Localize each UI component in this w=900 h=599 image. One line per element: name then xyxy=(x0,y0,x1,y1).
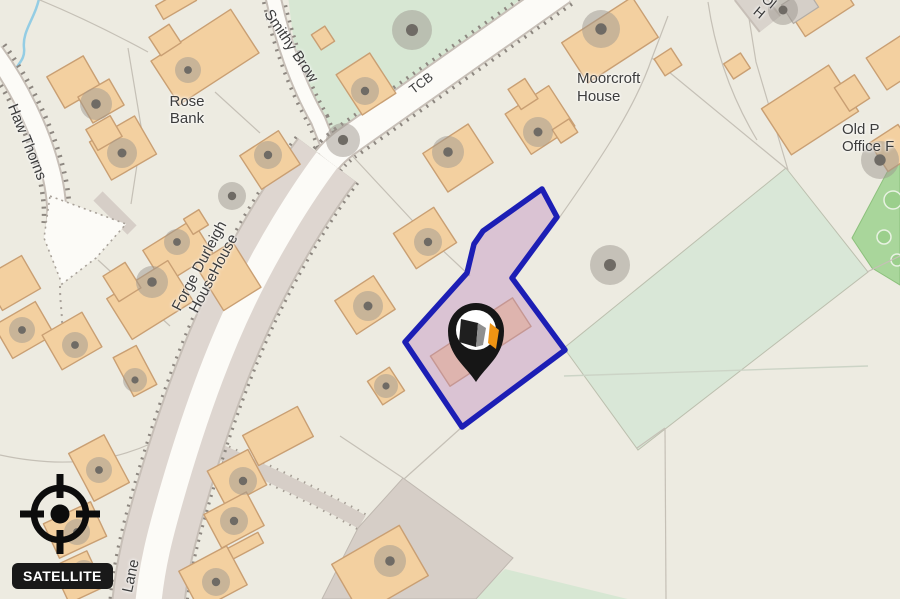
satellite-button-label: SATELLITE xyxy=(23,568,102,584)
map-label-moorcroft-house: Moorcroft House xyxy=(577,70,640,106)
map-label-old-post-office: Old P Office F xyxy=(842,121,894,155)
map-canvas[interactable] xyxy=(0,0,900,599)
map-label-rose-bank: Rose Bank xyxy=(169,93,204,127)
map-viewport[interactable]: Rose Bank Moorcroft House Old P Office F… xyxy=(0,0,900,599)
locate-crosshair-icon[interactable] xyxy=(14,468,106,560)
satellite-toggle-button[interactable]: SATELLITE xyxy=(12,563,113,589)
